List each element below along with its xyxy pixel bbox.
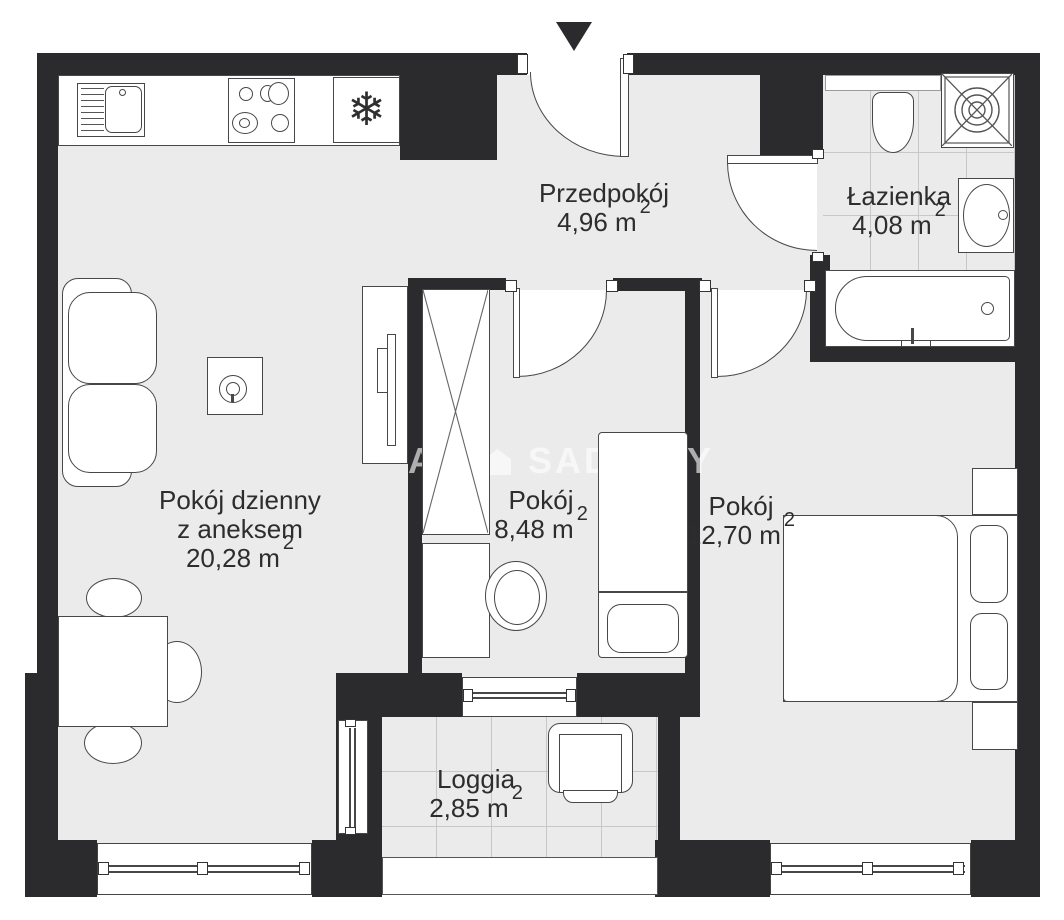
room-area: 2,85 m2 <box>429 794 523 823</box>
room-large-door-leaf <box>711 288 718 378</box>
dining-table <box>58 616 168 727</box>
room-small-door-leaf <box>513 288 520 378</box>
washbasin-tap <box>998 210 1008 220</box>
balcony-door <box>338 720 368 834</box>
wall-right <box>1015 53 1040 897</box>
room-area: 12,70 m2 <box>687 521 795 550</box>
plant-stem <box>231 394 234 402</box>
wall-loggia-top-right <box>577 673 700 717</box>
room-name: Pokój dzienny <box>159 486 321 515</box>
loggia-railing <box>382 857 658 895</box>
bathtub-drain <box>981 302 994 315</box>
room-label-large: Pokój 12,70 m2 <box>687 492 795 550</box>
wardrobe <box>422 289 490 535</box>
room-name-2: z aneksem <box>159 515 321 544</box>
sink-drainer <box>81 88 104 133</box>
door-frame-marker <box>345 827 356 835</box>
door-frame-marker <box>699 280 711 292</box>
room-area: 20,28 m2 <box>159 544 321 573</box>
window-stop <box>771 862 782 875</box>
double-bed-duvet <box>783 515 958 702</box>
loggia-armchair-front <box>563 790 618 803</box>
single-bed-pillow <box>607 604 679 653</box>
shower <box>941 73 1014 148</box>
shower-cross-lines <box>942 74 1012 146</box>
window-stop <box>299 862 310 875</box>
room-name: Pokój <box>687 492 795 521</box>
wall-loggia-right <box>658 717 680 857</box>
window-glass-line <box>469 692 571 694</box>
bathroom-shelf <box>825 75 941 91</box>
bathroom-door-leaf <box>727 155 818 164</box>
door-frame-marker <box>812 252 824 262</box>
stove-burner-ring <box>239 118 250 128</box>
window-stop <box>953 862 964 875</box>
loggia-armchair-seat <box>559 734 622 793</box>
door-frame-marker <box>345 719 356 727</box>
window-glass-line <box>469 697 571 699</box>
room-label-loggia: Loggia 2,85 m2 <box>429 765 523 823</box>
floor-plan: A SADU Y ❄ <box>0 0 1064 920</box>
snowflake-icon: ❄ <box>334 78 399 140</box>
entrance-arrow-icon <box>556 22 592 51</box>
window-stop <box>197 862 208 875</box>
wall-left-upper <box>37 53 58 673</box>
room-area: 8,48 m2 <box>494 515 588 544</box>
window-stop <box>862 862 873 875</box>
wall-top-right <box>627 53 1040 75</box>
room-label-bath: Łazienka 4,08 m2 <box>847 182 951 240</box>
door-frame-marker <box>517 54 528 74</box>
wall-bedroom-bottom <box>655 840 770 897</box>
wall-loggia-top-left <box>336 673 462 717</box>
sofa-cushion <box>68 292 157 384</box>
door-frame-marker <box>804 280 816 292</box>
tv-screen <box>387 334 396 446</box>
room-name: Pokój <box>494 486 588 515</box>
bed-pillow <box>970 525 1008 603</box>
nightstand <box>972 702 1018 750</box>
bathtub-tap-base <box>901 340 931 347</box>
bathtub-tap <box>911 328 914 344</box>
wall-kitchen-pillar <box>400 53 497 160</box>
bed-pillow <box>970 613 1008 690</box>
dining-chair <box>86 578 142 618</box>
wall-entry-pillar <box>760 73 823 157</box>
stove-burner <box>268 82 289 105</box>
room-label-hall: Przedpokój 4,96 m2 <box>539 179 669 237</box>
balcony-door-glass-line <box>349 728 351 827</box>
wardrobe-cross-lines <box>423 290 488 533</box>
nightstand <box>972 468 1018 515</box>
stove-burner <box>239 87 253 101</box>
window-stop <box>98 862 109 875</box>
room-label-living: Pokój dzienny z aneksem 20,28 m2 <box>159 486 321 573</box>
desk-chair-seat <box>494 570 540 625</box>
window-stop <box>566 689 576 702</box>
single-bed-line <box>599 591 687 593</box>
door-frame-marker <box>812 149 824 159</box>
fridge: ❄ <box>333 77 400 143</box>
room-area: 4,96 m2 <box>539 208 669 237</box>
sink-tap <box>119 89 126 96</box>
room-area: 4,08 m2 <box>847 211 951 240</box>
sofa-cushion <box>68 384 157 473</box>
dining-chair <box>84 722 142 764</box>
wall-bath-bottom <box>810 347 1015 362</box>
room-name: Loggia <box>429 765 523 794</box>
stove-burner <box>271 114 289 132</box>
room-label-small: Pokój 8,48 m2 <box>494 486 588 544</box>
door-frame-marker <box>623 54 634 74</box>
door-frame-marker <box>505 280 517 292</box>
balcony-door-glass-line <box>354 728 356 827</box>
door-frame-marker <box>606 280 618 292</box>
watermark-text-right: Y <box>687 444 714 478</box>
wall-bottom-a <box>25 840 97 897</box>
toilet <box>872 92 914 153</box>
desk <box>422 543 490 658</box>
window-stop <box>463 689 473 702</box>
